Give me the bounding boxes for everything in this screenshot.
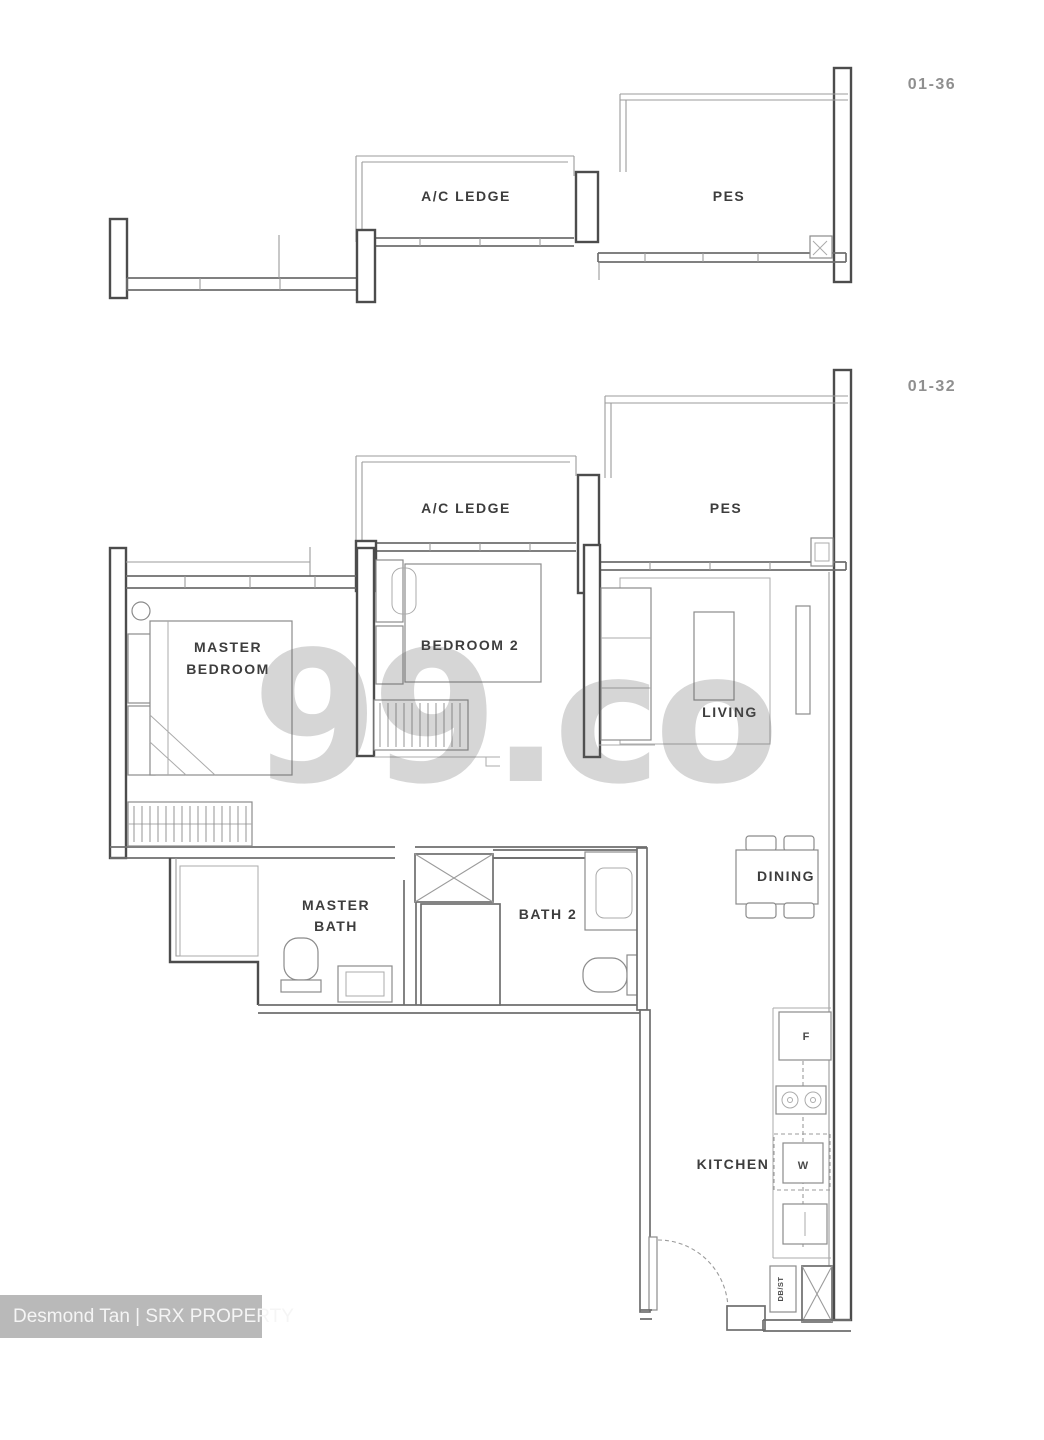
credit-text: Desmond Tan | SRX PROPERTY — [0, 1306, 294, 1328]
entrance-door — [649, 1237, 728, 1310]
bedroom-divider-wall — [357, 548, 374, 756]
bedroom2-living-wall — [584, 545, 600, 757]
top-pes-walls — [620, 94, 848, 172]
master-bath — [170, 858, 416, 1005]
top-unit-number: 01-36 — [908, 76, 956, 93]
pes-label: PES — [710, 500, 743, 516]
top-pillar-mid — [357, 230, 375, 302]
toilet — [281, 938, 321, 992]
pes-bottom-wall — [599, 562, 846, 570]
master-bath-outer-wall — [170, 858, 258, 1005]
top-pillar-right — [576, 172, 598, 242]
top-pillar-left — [110, 219, 127, 298]
top-pes-drain — [810, 236, 832, 258]
master-bedroom-label-line1: MASTER — [194, 639, 262, 655]
top-pes-label: PES — [713, 188, 746, 204]
dbst-cabinet: DB/ST — [770, 1266, 796, 1312]
master-bath-label-line2: BATH — [314, 918, 358, 934]
top-ac-ledge-window — [358, 238, 574, 246]
top-ac-ledge-window-ticks — [420, 238, 540, 246]
pes-drain — [811, 538, 833, 566]
master-bedroom-left-wall — [110, 548, 126, 858]
bath-block-bottom-wall — [258, 1005, 647, 1013]
master-bedroom-window-ticks — [185, 576, 315, 588]
top-ac-ledge-label: A/C LEDGE — [421, 188, 511, 204]
door-swing-arc — [658, 1240, 728, 1310]
main-unit-number: 01-32 — [908, 378, 956, 395]
bottom-shaft — [802, 1266, 832, 1322]
bedroom2-label: BEDROOM 2 — [421, 637, 519, 653]
top-floor-plan: A/C LEDGE PES — [110, 68, 851, 302]
top-pes-window-ticks — [645, 253, 758, 262]
door-leaf — [649, 1237, 657, 1310]
top-pes-bottom-wall — [598, 253, 846, 262]
kitchen-label: KITCHEN — [697, 1156, 770, 1172]
tv-console — [796, 606, 810, 714]
washer-label: W — [798, 1160, 809, 1172]
fridge: F — [779, 1012, 831, 1060]
floorplan-canvas: A/C LEDGE PES 01-36 — [0, 0, 1044, 1440]
bedroom2-bed — [376, 560, 541, 684]
master-bedroom-window — [126, 576, 357, 588]
bath2-right-wall — [637, 848, 647, 1010]
entrance-threshold — [727, 1306, 765, 1330]
hob — [776, 1086, 826, 1114]
living-label: LIVING — [702, 704, 758, 720]
coffee-table — [694, 612, 734, 700]
ac-ledge-window — [376, 543, 576, 551]
floorplan-image: A/C LEDGE PES 01-36 — [0, 0, 1044, 1440]
credit-bar: Desmond Tan | SRX PROPERTY — [0, 1295, 262, 1338]
dining-chair — [746, 903, 776, 918]
master-wardrobe — [128, 802, 252, 846]
dbst-label: DB/ST — [776, 1277, 785, 1302]
fridge-label: F — [803, 1031, 810, 1043]
bath2-toilet — [583, 955, 641, 995]
vanity-sink — [338, 966, 392, 1002]
main-floor-plan: F W DB/ST — [110, 370, 851, 1331]
master-bed — [128, 602, 292, 775]
master-bath-label-line1: MASTER — [302, 897, 370, 913]
bath2-label: BATH 2 — [519, 906, 578, 922]
dining-label: DINING — [757, 868, 815, 884]
ac-ledge-label: A/C LEDGE — [421, 500, 511, 516]
sofa — [599, 588, 655, 745]
pes-walls — [605, 396, 848, 478]
top-window-ticks — [200, 278, 280, 290]
master-bedroom-label-line2: BEDROOM — [186, 661, 270, 677]
pes-window-ticks — [650, 562, 770, 570]
bath2-sink — [585, 852, 645, 930]
bedroom2-wardrobe — [374, 700, 500, 766]
service-shaft — [415, 854, 493, 902]
dining-chair — [784, 903, 814, 918]
dining-chair — [746, 836, 776, 851]
bath-closet — [421, 904, 500, 1005]
ac-ledge-window-ticks — [430, 543, 530, 551]
washer: W — [774, 1134, 830, 1190]
bath2 — [493, 848, 647, 1010]
oven-unit — [783, 1204, 827, 1244]
main-right-wall — [834, 370, 851, 1320]
master-bedroom-wall-face — [126, 547, 310, 576]
dining-chair — [784, 836, 814, 851]
bedroom-bottom-wall — [110, 847, 647, 858]
top-window-wall — [127, 278, 357, 290]
